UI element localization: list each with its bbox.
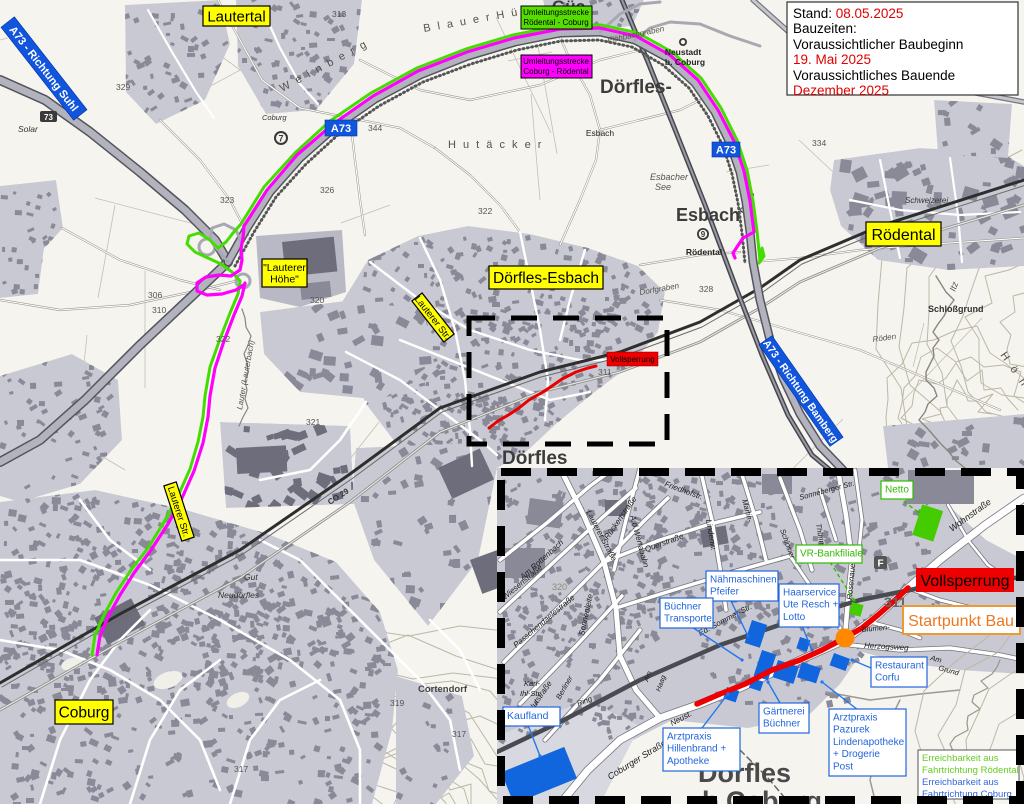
svg-text:VR-Bankfiliale: VR-Bankfiliale <box>800 549 863 560</box>
svg-text:306: 306 <box>148 290 162 300</box>
svg-text:Rödental: Rödental <box>686 247 722 257</box>
svg-text:320: 320 <box>310 295 324 305</box>
svg-text:Neudörfles: Neudörfles <box>218 590 260 600</box>
svg-text:Kaufland: Kaufland <box>507 710 549 722</box>
svg-text:321: 321 <box>306 417 320 427</box>
svg-text:322: 322 <box>216 334 230 344</box>
svg-text:See: See <box>655 182 671 192</box>
svg-text:Post: Post <box>833 761 853 772</box>
svg-text:Nähmaschinen: Nähmaschinen <box>710 575 777 586</box>
svg-text:Karl-: Karl- <box>524 679 540 688</box>
svg-text:Arztpraxis: Arztpraxis <box>833 713 877 724</box>
svg-text:Lotto: Lotto <box>783 612 806 623</box>
svg-text:310: 310 <box>152 305 166 315</box>
svg-text:Esbacher: Esbacher <box>650 172 689 182</box>
svg-text:Rödental - Coburg: Rödental - Coburg <box>523 18 588 27</box>
svg-text:Solar: Solar <box>18 124 39 134</box>
svg-text:Coburg - Rödental: Coburg - Rödental <box>523 67 589 76</box>
svg-text:311: 311 <box>598 367 612 377</box>
svg-text:313: 313 <box>332 9 346 19</box>
svg-text:Coburg: Coburg <box>59 705 110 722</box>
svg-text:Ute Resch +: Ute Resch + <box>783 600 838 611</box>
svg-text:b. Coburg: b. Coburg <box>665 57 705 67</box>
svg-text:Umleitungsstrecke: Umleitungsstrecke <box>523 57 589 66</box>
svg-text:Bauzeiten:: Bauzeiten: <box>793 21 857 36</box>
svg-text:A73: A73 <box>716 144 736 156</box>
svg-text:334: 334 <box>812 138 826 148</box>
svg-text:320: 320 <box>552 582 567 592</box>
svg-text:Esbach: Esbach <box>586 128 615 138</box>
svg-text:Gut: Gut <box>244 572 258 582</box>
svg-text:Dörfles: Dörfles <box>502 448 567 469</box>
svg-text:Rödental: Rödental <box>871 227 935 244</box>
svg-text:328: 328 <box>699 284 713 294</box>
svg-text:Esbach: Esbach <box>676 205 740 225</box>
svg-text:Voraussichtliches Bauende: Voraussichtliches Bauende <box>793 68 955 83</box>
svg-text:Dörfles-Esbach: Dörfles-Esbach <box>493 270 599 287</box>
svg-text:Voraussichtlicher Baubeginn: Voraussichtlicher Baubeginn <box>793 37 963 52</box>
svg-text:323: 323 <box>220 195 234 205</box>
svg-text:317: 317 <box>234 764 248 774</box>
svg-text:"Lauterer: "Lauterer <box>263 262 306 274</box>
svg-text:Ihl-Str.: Ihl-Str. <box>520 689 542 698</box>
svg-text:Restaurant: Restaurant <box>875 661 924 672</box>
svg-text:Pazurek: Pazurek <box>833 725 871 736</box>
svg-text:344: 344 <box>368 123 382 133</box>
svg-text:Neustadt: Neustadt <box>665 47 702 57</box>
svg-text:Stand: 08.05.2025: Stand: 08.05.2025 <box>793 6 903 21</box>
svg-text:+ Drogerie: + Drogerie <box>833 749 880 760</box>
svg-text:H u t ä c k e r: H u t ä c k e r <box>448 139 543 151</box>
svg-text:F: F <box>877 559 883 570</box>
svg-text:7: 7 <box>278 134 283 144</box>
svg-text:Startpunkt Bau: Startpunkt Bau <box>908 613 1014 630</box>
svg-text:317: 317 <box>452 729 466 739</box>
svg-text:Erreichbarkeit aus: Erreichbarkeit aus <box>922 777 999 788</box>
svg-text:Transporte: Transporte <box>664 614 712 625</box>
svg-text:Arztpraxis: Arztpraxis <box>667 732 711 743</box>
svg-text:Erreichbarkeit aus: Erreichbarkeit aus <box>922 753 999 764</box>
svg-text:Netto: Netto <box>885 485 909 496</box>
svg-text:Vollsperrung: Vollsperrung <box>610 355 654 364</box>
svg-text:322: 322 <box>478 206 492 216</box>
svg-text:Schloßgrund: Schloßgrund <box>928 304 984 314</box>
svg-text:Lindenapotheke: Lindenapotheke <box>833 737 905 748</box>
svg-text:9: 9 <box>701 230 706 239</box>
svg-text:Schweizerei: Schweizerei <box>905 196 948 205</box>
svg-text:Pfeifer: Pfeifer <box>710 587 740 598</box>
svg-text:Büchner: Büchner <box>763 719 801 730</box>
svg-text:Büchner: Büchner <box>664 602 702 613</box>
svg-text:Cortendorf: Cortendorf <box>418 684 468 695</box>
svg-text:326: 326 <box>320 185 334 195</box>
svg-text:Dezember 2025: Dezember 2025 <box>793 83 889 98</box>
svg-text:Vollsperrung: Vollsperrung <box>921 573 1010 590</box>
svg-text:319: 319 <box>390 698 404 708</box>
svg-text:Haarservice: Haarservice <box>783 588 837 599</box>
svg-text:73: 73 <box>44 113 53 122</box>
svg-text:A73: A73 <box>331 123 351 135</box>
svg-text:Corfu: Corfu <box>875 673 899 684</box>
svg-text:Umleitungsstrecke: Umleitungsstrecke <box>523 8 589 17</box>
svg-text:Apotheke: Apotheke <box>667 756 710 767</box>
svg-text:Dörfles-: Dörfles- <box>600 77 672 98</box>
svg-text:329: 329 <box>116 82 130 92</box>
svg-text:Gärtnerei: Gärtnerei <box>763 707 805 718</box>
svg-text:Fahrtrichtung Rödental: Fahrtrichtung Rödental <box>922 765 1019 776</box>
svg-text:Höhe": Höhe" <box>270 274 299 286</box>
svg-text:Hillenbrand +: Hillenbrand + <box>667 744 726 755</box>
svg-text:19. Mai 2025: 19. Mai 2025 <box>793 52 871 67</box>
svg-text:Coburg: Coburg <box>262 113 287 122</box>
svg-text:Lautertal: Lautertal <box>207 8 265 25</box>
